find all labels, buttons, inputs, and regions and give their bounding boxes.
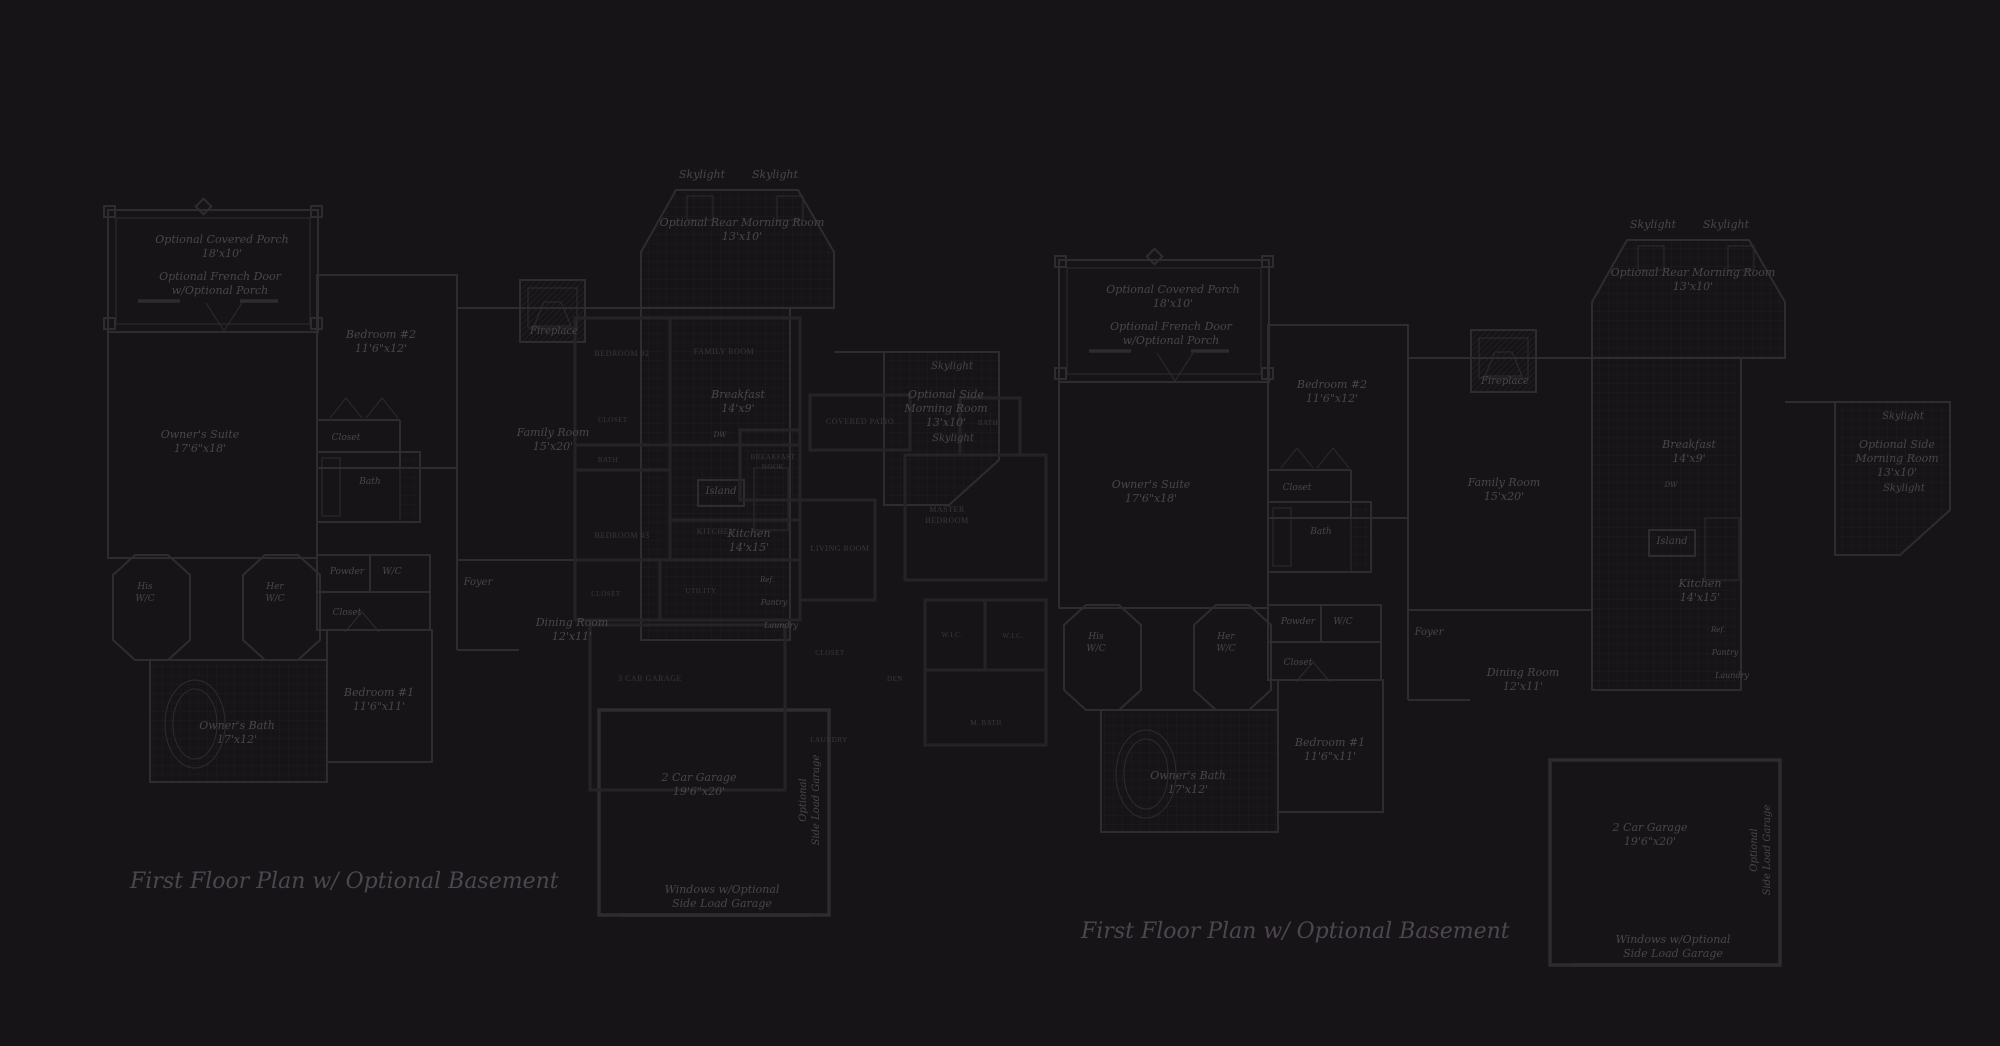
label-optional: OptionalSide Load Garage xyxy=(798,755,822,846)
label-family-room: Family Room15'x20' xyxy=(1467,476,1541,503)
label-dining-room: Dining Room12'x11' xyxy=(535,616,609,643)
label-skylight: Skylight xyxy=(1703,218,1750,231)
label-closet: Closet xyxy=(1284,658,1313,668)
label-laundry: LAUNDRY xyxy=(810,736,847,744)
label-dw: DW xyxy=(713,431,728,439)
label-kitchen: KITCHEN xyxy=(697,527,736,536)
label-2-car-garage: 2 Car Garage19'6"x20' xyxy=(661,771,737,798)
label-w-i-c: W.I.C. xyxy=(1002,632,1023,640)
label-closet: Closet xyxy=(1283,483,1312,493)
label-optional-covered-porch: Optional Covered Porch18'x10' xyxy=(1106,283,1239,310)
label-w-i-c: W.I.C. xyxy=(941,631,962,639)
label-her: HerW/C xyxy=(1216,632,1235,654)
label-optional-covered-porch: Optional Covered Porch18'x10' xyxy=(155,233,288,260)
label-covered-patio: COVERED PATIO xyxy=(826,417,894,426)
label-pantry: Pantry xyxy=(760,598,788,607)
floorplan-page: Optional Covered Porch18'x10'Optional Fr… xyxy=(0,0,2000,1046)
label-powder: Powder xyxy=(1280,617,1316,627)
label-bedroom-1: Bedroom #111'6"x11' xyxy=(1294,736,1365,763)
label-owner-s-suite: Owner's Suite17'6"x18' xyxy=(1112,478,1191,505)
label-closet: Closet xyxy=(332,433,361,443)
label-skylight: Skylight xyxy=(1882,411,1925,422)
label-bedroom-1: Bedroom #111'6"x11' xyxy=(343,686,414,713)
label-foyer: Foyer xyxy=(463,577,494,588)
floorplan-canvas: Optional Covered Porch18'x10'Optional Fr… xyxy=(0,0,2000,1046)
label-dw: DW xyxy=(1664,481,1679,489)
label-laundry: Laundry xyxy=(1714,671,1749,680)
label-bath: Bath xyxy=(358,477,380,487)
label-2-car-garage: 2 Car Garage19'6"x20' xyxy=(1612,821,1688,848)
label-family-room: Family Room15'x20' xyxy=(516,426,590,453)
label-bath: BATH xyxy=(598,456,618,464)
label-ref: Ref. xyxy=(1710,626,1725,634)
label-closet: Closet xyxy=(333,608,362,618)
label-bath: Bath xyxy=(1309,527,1331,537)
label-skylight: Skylight xyxy=(1883,483,1926,494)
label-kitchen: Kitchen14'x15' xyxy=(1678,577,1722,604)
label-utility: UTILITY xyxy=(685,587,716,595)
label-closet: CLOSET xyxy=(591,590,621,598)
label-family-room: FAMILY ROOM xyxy=(694,347,754,356)
label-skylight: Skylight xyxy=(932,433,975,444)
label-bedroom-2: BEDROOM #2 xyxy=(594,349,649,358)
label-den: DEN xyxy=(887,675,903,683)
label-windows-w-optional: Windows w/OptionalSide Load Garage xyxy=(1616,933,1731,960)
label-living-room: LIVING ROOM xyxy=(810,544,869,553)
label-powder: Powder xyxy=(329,567,365,577)
label-laundry: Laundry xyxy=(763,621,798,630)
caption-first-floor-plan-left: First Floor Plan w/ Optional Basement xyxy=(129,869,559,894)
label-bath: BATH xyxy=(978,419,998,427)
label-skylight: Skylight xyxy=(931,361,974,372)
label-her: HerW/C xyxy=(265,582,284,604)
label-island: Island xyxy=(1655,536,1687,547)
label-closet: CLOSET xyxy=(598,416,628,424)
label-master: MASTERBEDROOM xyxy=(925,505,969,525)
label-ref: Ref. xyxy=(759,576,774,584)
label-w-c: W/C xyxy=(382,567,401,577)
label-owner-s-suite: Owner's Suite17'6"x18' xyxy=(161,428,240,455)
label-skylight: Skylight xyxy=(752,168,799,181)
label-fireplace: Fireplace xyxy=(1480,376,1529,387)
label-3-car-garage: 3 CAR GARAGE xyxy=(618,674,682,683)
caption-first-floor-plan-right: First Floor Plan w/ Optional Basement xyxy=(1080,919,1510,944)
label-fireplace: Fireplace xyxy=(529,326,578,337)
label-his: HisW/C xyxy=(135,582,154,604)
label-his: HisW/C xyxy=(1086,632,1105,654)
label-dining-room: Dining Room12'x11' xyxy=(1486,666,1560,693)
label-optional-french-door: Optional French Doorw/Optional Porch xyxy=(159,270,282,297)
label-pantry: Pantry xyxy=(1711,648,1739,657)
label-optional: OptionalSide Load Garage xyxy=(1749,805,1773,896)
label-foyer: Foyer xyxy=(1414,627,1445,638)
label-m-bath: M. BATH xyxy=(970,719,1002,727)
label-skylight: Skylight xyxy=(679,168,726,181)
label-bedroom-2: Bedroom #211'6"x12' xyxy=(1296,378,1367,405)
label-closet: CLOSET xyxy=(815,649,845,657)
label-bedroom-2: Bedroom #211'6"x12' xyxy=(345,328,416,355)
label-windows-w-optional: Windows w/OptionalSide Load Garage xyxy=(665,883,780,910)
label-optional-french-door: Optional French Doorw/Optional Porch xyxy=(1110,320,1233,347)
label-w-c: W/C xyxy=(1333,617,1352,627)
label-island: Island xyxy=(704,486,736,497)
label-bedroom-3: BEDROOM #3 xyxy=(594,531,649,540)
label-skylight: Skylight xyxy=(1630,218,1677,231)
